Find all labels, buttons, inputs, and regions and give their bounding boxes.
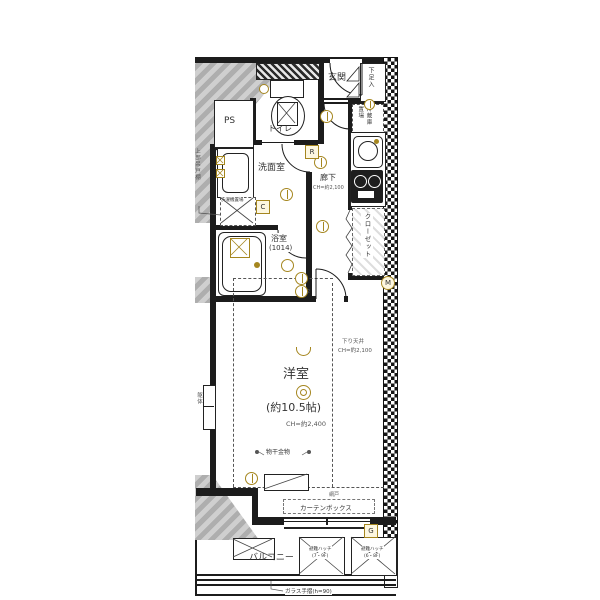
wall-washroom-hall-b: [306, 172, 312, 225]
laundry-dot-left: [255, 450, 259, 454]
balcony-left-line: [195, 540, 197, 596]
laundry-hardware-label: 物干金物: [266, 447, 290, 456]
lowered-ceiling-ch-label: CH=約2,100: [338, 346, 372, 354]
closet-label: クローゼット: [361, 213, 373, 258]
wall-window-left: [252, 517, 284, 525]
toilet-switch-symbol: [259, 84, 269, 94]
wall-room-bottom-left: [196, 488, 258, 496]
marker-m-gas-meter: M: [381, 276, 395, 290]
entry-door-sill: [330, 57, 362, 59]
genkan-label: 玄関: [328, 70, 346, 83]
toilet-label: トイレ: [268, 123, 292, 134]
wall-left-lower: [210, 428, 216, 490]
balcony-label: バルコニー: [249, 550, 294, 563]
wall-bath-bottom: [210, 296, 312, 302]
hallway-label: 廊下: [320, 172, 336, 183]
structure-label: 躯体: [195, 392, 203, 405]
vanity-symbol-1: [216, 156, 225, 165]
glass-rail-label: ガラス手摺(h=90): [285, 587, 332, 595]
left-wall-window-mullion: [203, 406, 214, 407]
room-switch-symbol-a: [295, 272, 308, 285]
hall-symbol-3: [316, 220, 329, 233]
vanity-bowl: [222, 153, 249, 193]
main-room-size-label: (約10.5帖): [266, 399, 321, 415]
floor-plan: PS 下足入 冷蔵庫 置場 洗濯機置場: [0, 0, 600, 600]
kitchen-faucet: [374, 139, 379, 144]
toilet-door-sill: [262, 142, 294, 143]
evac-hatch-1-label: 避難ハッチ: [309, 546, 332, 552]
marker-c: C: [256, 200, 270, 214]
counter-outlet-symbol: [245, 472, 258, 485]
stove-burner-left: [354, 175, 367, 188]
wall-hall-bottom-b: [344, 296, 348, 302]
laundry-dot-right: [307, 450, 311, 454]
washroom-symbol: [280, 188, 293, 201]
stove-burner-right: [368, 175, 381, 188]
switch-count-label: 2: [307, 289, 310, 295]
washer-label: 洗濯機置場: [221, 197, 244, 203]
ps-label: PS: [224, 116, 235, 126]
left-wall-window: [203, 385, 216, 430]
wall-hall-bottom-a: [312, 296, 316, 302]
bath-filler-box: [230, 238, 250, 258]
glass-rail-line3: [197, 584, 396, 586]
ceiling-drop-line-left: [233, 278, 234, 487]
evac-hatch-1-floors: (7・9F): [312, 553, 328, 559]
room-light-symbol-inner: [300, 389, 307, 396]
bath-drain: [254, 262, 260, 268]
ceiling-drop-line-top: [233, 278, 333, 279]
curtain-box-label: カーテンボックス: [300, 502, 352, 512]
slab-left-block: [195, 277, 210, 303]
marker-r: R: [305, 145, 319, 159]
main-room-ch-label: CH=約2,400: [286, 418, 326, 428]
stove-grill: [358, 191, 374, 198]
glass-rail-line2: [197, 579, 396, 581]
evac-hatch-2-label: 避難ハッチ: [361, 546, 384, 552]
hall-symbol-1: [320, 110, 333, 123]
marker-g: G: [364, 524, 378, 538]
kitchen-sink-basin: [358, 141, 378, 161]
bathroom-label: 浴室: [270, 233, 288, 244]
fridge-outlet-symbol: [364, 99, 375, 110]
evac-hatch-2-floors: (6・8F): [364, 553, 380, 559]
hallway-ch-label: CH=約2,100: [313, 184, 344, 191]
screen-door-label: 網戸: [329, 491, 339, 498]
slab-left-strip: [195, 57, 211, 223]
balcony-window-meeting: [326, 517, 328, 525]
wall-left-upper: [210, 144, 216, 385]
washroom-label: 洗面室: [258, 160, 285, 173]
lowered-ceiling-label: 下り天井: [342, 337, 364, 345]
shoe-box-fold-doors: [347, 67, 359, 97]
main-room-label: 洋室: [283, 363, 309, 382]
ceiling-hook-symbol: [296, 347, 311, 356]
toilet-upper-cabinet: [256, 63, 320, 80]
wall-right-exterior: [383, 57, 398, 542]
window-counter: [264, 474, 309, 491]
shoe-box-label: 下足入: [366, 67, 375, 88]
upper-cabinet-label: 上部吊戸棚: [193, 148, 201, 181]
bath-shower-symbol: [281, 259, 294, 272]
bathroom-size-label: (1014): [268, 244, 293, 252]
vanity-symbol-2: [216, 169, 225, 178]
ceiling-drop-line-right: [332, 283, 333, 487]
